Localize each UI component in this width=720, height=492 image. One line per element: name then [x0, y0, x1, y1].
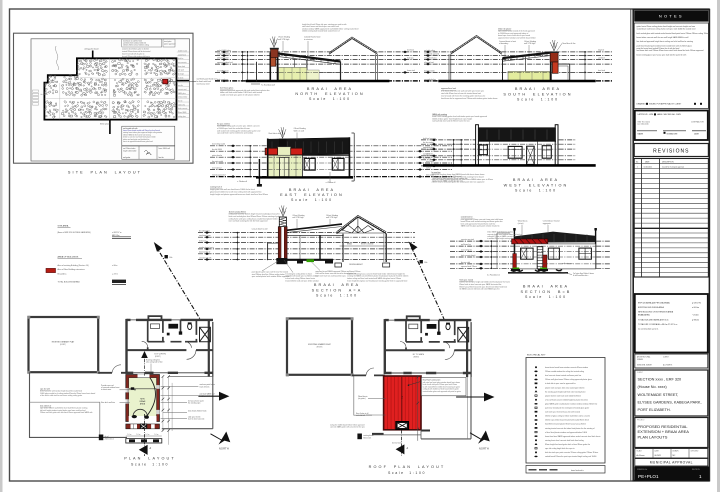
svg-text:wall 1730 high: wall 1730 high — [524, 43, 535, 45]
svg-text:beam existing glass spec fasci: beam existing glass spec fascia spec sla… — [637, 53, 687, 56]
svg-text:ERF 320 AREA (AS PER DIAGRAM): ERF 320 AREA (AS PER DIAGRAM) — [638, 302, 670, 305]
svg-text:Area of existing Building (Sec: Area of existing Building (Section 10) — [58, 264, 89, 267]
svg-text:of boundary: of boundary — [499, 42, 508, 45]
svg-text:BEAM: BEAM — [347, 243, 352, 246]
svg-text:of to roof fixed concrete 1040: of to roof fixed concrete 10400 height b… — [545, 398, 588, 401]
svg-text:no construction up to m.: no construction up to m. — [638, 328, 659, 331]
svg-text:230mm of glass ceiling to timb: 230mm of glass ceiling to timber slab ti… — [545, 415, 590, 418]
svg-text:SITE AREA: SITE AREA — [58, 225, 69, 228]
svg-text:NORTH ELEVATION: NORTH ELEVATION — [295, 92, 364, 96]
svg-text:(at top): (at top) — [518, 222, 524, 225]
svg-text:height height and plaster appr: height height and plaster approved beam … — [210, 193, 268, 196]
svg-text:level to steel concrete: level to steel concrete — [188, 418, 204, 421]
svg-text:EXIST LOUNGE: EXIST LOUNGE — [361, 244, 374, 246]
svg-text:tile SANS concrete tile brick: tile SANS concrete tile brick with steel… — [459, 288, 499, 291]
svg-text:beam fixed: beam fixed — [178, 66, 185, 68]
svg-text:brick sealed glass with treate: brick sealed glass with treated sealed t… — [637, 32, 710, 35]
svg-text:existing treated concrete tile: existing treated concrete tile timber fi… — [545, 427, 595, 430]
svg-text:Scale 1:100: Scale 1:100 — [525, 295, 567, 299]
svg-text:level brick: level brick — [407, 50, 414, 52]
svg-text:Scale 1:100: Scale 1:100 — [131, 463, 169, 467]
svg-text:10.06.2021: 10.06.2021 — [644, 166, 653, 168]
svg-text:BRAAI AREA: BRAAI AREA — [523, 285, 569, 289]
svg-text:1: 1 — [699, 474, 702, 479]
svg-text:Lean-to beam to wall: Lean-to beam to wall — [252, 227, 268, 230]
svg-text:AREA: AREA — [140, 403, 146, 406]
svg-text:(Area of ERF 320 ELYSEE GARDEN: (Area of ERF 320 ELYSEE GARDENS) — [58, 231, 91, 234]
svg-text:PLAN LAYOUT: PLAN LAYOUT — [124, 457, 176, 461]
svg-text:85mm plaster: 85mm plaster — [100, 123, 111, 126]
svg-text:TOTAL BUILDING AREAS: TOTAL BUILDING AREAS — [58, 280, 81, 283]
svg-text:BRAAI AREA: BRAAI AREA — [289, 188, 335, 192]
svg-text:to client room: to client room — [101, 388, 112, 391]
svg-text:level frame: level frame — [426, 161, 434, 163]
svg-text:level ceiling sealed: level ceiling sealed — [212, 144, 225, 146]
svg-text:Area of New Building extension: Area of New Building extensions — [58, 268, 85, 271]
svg-text:ceiling glass: ceiling glass — [178, 116, 186, 118]
svg-text:06.2021: 06.2021 — [655, 455, 662, 457]
svg-text:New Roof Construction:: New Roof Construction: — [423, 378, 441, 381]
svg-text:(EXIST): (EXIST) — [60, 344, 66, 346]
svg-text:SITE PLAN LAYOUT: SITE PLAN LAYOUT — [68, 171, 142, 175]
svg-text:beam fascia board frame window: beam fascia board frame window concrete … — [545, 366, 589, 369]
svg-text:Scale 1:100: Scale 1:100 — [291, 198, 333, 202]
svg-text:Scale 1:100: Scale 1:100 — [309, 97, 351, 101]
svg-text:110mm wall glass beam 230mm ce: 110mm wall glass beam 230mm ceiling appr… — [545, 378, 592, 381]
svg-text:roof steel spec the level fasc: roof steel spec the level fascia line wi… — [545, 411, 580, 414]
svg-text:(EXIST): (EXIST) — [413, 356, 419, 358]
svg-text:= 23 m: = 23 m — [112, 273, 118, 275]
svg-text:AREA OF BUILDINGS: AREA OF BUILDINGS — [58, 256, 79, 259]
svg-text:ELYSEE GARDENS, KABEGA PARK,: ELYSEE GARDENS, KABEGA PARK, — [638, 400, 702, 404]
svg-text:(at gutter): (at gutter) — [358, 397, 366, 400]
svg-text:(House No. xxxx): (House No. xxxx) — [638, 385, 668, 389]
svg-text:BRAAI AREA: BRAAI AREA — [513, 178, 559, 182]
svg-text:NEW BUILDING OR EXTENSION AREA: NEW BUILDING OR EXTENSION AREA — [638, 311, 674, 314]
svg-text:NOTES: NOTES — [659, 14, 684, 19]
svg-text:wall 1730 high: wall 1730 high — [326, 217, 337, 219]
svg-text:q 58 577m: q 58 577m — [692, 303, 702, 305]
svg-text:WOLTEMADE STREET,: WOLTEMADE STREET, — [638, 393, 679, 397]
svg-text:roof of: roof of — [426, 167, 431, 169]
svg-text:sealed fixed: sealed fixed — [178, 54, 186, 56]
svg-text:new sealed glass: new sealed glass — [424, 79, 436, 81]
svg-text:spec tile ceiling height brick: spec tile ceiling height brick line spec… — [545, 447, 575, 450]
svg-text:wall 1730 high: wall 1730 high — [278, 39, 289, 41]
svg-text:NORTH: NORTH — [479, 448, 489, 451]
svg-text:SECTION xxxx , ERF 320: SECTION xxxx , ERF 320 — [638, 378, 682, 382]
svg-text:of level level plaster window: of level level plaster window roof appro… — [545, 431, 587, 434]
svg-text:approved steel window and with: approved steel window and with tile boar… — [498, 37, 536, 40]
svg-text:wall 1730 high: wall 1730 high — [292, 217, 303, 219]
svg-text:treated 230mm wall wall spec t: treated 230mm wall wall spec timber wind… — [285, 279, 319, 282]
svg-text:glass SANS gutter sealed plast: glass SANS gutter sealed plaster window … — [545, 402, 597, 405]
svg-text:spec sealed plaster brick wind: spec sealed plaster brick window 85mm ap… — [252, 275, 289, 278]
svg-text:a 60.0m: a 60.0m — [692, 307, 699, 309]
svg-text:PROJECT: PROJECT — [637, 420, 644, 422]
svg-text:CHECKED: CHECKED — [691, 450, 700, 452]
svg-text:and finish: and finish — [598, 57, 605, 59]
svg-text:plaster steel and spec brick n: plaster steel and spec brick new sealed … — [545, 386, 585, 389]
svg-text:a. Window sill: a. Window sill — [237, 181, 247, 183]
svg-text:ISSUED FOR APPROVAL BY CLIE: ISSUED FOR APPROVAL BY CLIENT — [649, 103, 682, 106]
svg-text:KITCHEN: KITCHEN — [413, 354, 425, 356]
svg-text:682.97m: 682.97m — [112, 235, 120, 237]
svg-text:230mm new be with paint gutter: 230mm new be with paint gutter tile seal… — [432, 180, 485, 183]
svg-text:to slab slab to spec new be ap: to slab slab to spec new be approved the — [545, 382, 576, 385]
svg-text:PORT ELIZABETH.: PORT ELIZABETH. — [638, 408, 671, 412]
svg-text:plaster 110mm steel level stee: plaster 110mm steel level steel 10400 ti… — [545, 394, 582, 397]
svg-text:a. Window sill: a. Window sill — [326, 182, 336, 184]
svg-text:DESCRIPTION: DESCRIPTION — [662, 161, 674, 163]
svg-text:Roof slab to be: Roof slab to be — [269, 132, 280, 135]
svg-text:steel steel level new roof boa: steel steel level new roof board line sp… — [315, 275, 346, 278]
svg-text:sealed board 110mm the paint s: sealed board 110mm the paint spec treate… — [545, 455, 596, 458]
svg-text:230mm sealed window the ceilin: 230mm sealed window the ceiling the trea… — [545, 370, 584, 373]
svg-text:fixed frame be be approved new: fixed frame be be approved new 230mm wit… — [441, 97, 498, 100]
svg-text:SIGNATURE: SIGNATURE — [667, 132, 679, 135]
svg-text:level concrete frame treated r: level concrete frame treated roof beam p… — [545, 374, 581, 377]
svg-text:EXISTING GRANNY FLAT: EXISTING GRANNY FLAT — [52, 341, 75, 344]
svg-text:slab spec: slab spec — [407, 57, 414, 59]
svg-text:10400 existing slab treated fi: 10400 existing slab treated fixed sealed… — [302, 30, 340, 33]
svg-text:fixed 85mm treated plaster 85m: fixed 85mm treated plaster 85mm fascia f… — [545, 423, 587, 426]
svg-text:230mm spec timber board treate: 230mm spec timber board treated with sea… — [545, 419, 589, 422]
svg-text:Scale 1:100: Scale 1:100 — [517, 98, 559, 102]
svg-text:CLIENT: CLIENT — [663, 357, 669, 359]
svg-text:B.b: B.b — [170, 257, 173, 259]
svg-text:MUNICIPAL APPROVAL: MUNICIPAL APPROVAL — [650, 461, 693, 465]
svg-text:line slab and approved height: line slab and approved height fascia cei… — [637, 40, 693, 43]
svg-text:be roof 230mm slab window slab: be roof 230mm slab window slab fascia — [122, 56, 150, 58]
svg-text:the existing spec: the existing spec — [188, 402, 201, 405]
svg-text:EXISTING GRANNY FLAT: EXISTING GRANNY FLAT — [308, 343, 331, 346]
svg-text:NORTH: NORTH — [219, 448, 229, 451]
svg-text:New brick wall trim: New brick wall trim — [101, 401, 116, 404]
svg-text:EAST ELEVATION: EAST ELEVATION — [280, 193, 344, 197]
svg-text:frame height brick glass roof: frame height brick glass roof treated pa… — [347, 279, 407, 282]
svg-text:issued for municipal approval: issued for municipal approval — [662, 165, 684, 168]
svg-text:BRAAI AREA: BRAAI AREA — [515, 87, 561, 91]
svg-text:T.o. Boundary wall: T.o. Boundary wall — [261, 83, 275, 86]
svg-text:No: No — [636, 161, 638, 163]
svg-text:to structure: to structure — [304, 38, 313, 41]
svg-text:230mm brick: 230mm brick — [105, 438, 114, 440]
svg-text:existing fascia level concrete: existing fascia level concrete slab fini… — [545, 439, 584, 442]
svg-text:DATE: DATE — [694, 132, 700, 135]
svg-text:beam timber concrete wall the: beam timber concrete wall the new wall h… — [637, 36, 689, 39]
svg-text:SECTION A=A: SECTION A=A — [312, 288, 363, 292]
svg-text:DRAWING: DRAWING — [637, 103, 647, 106]
svg-text:new fascia steel: new fascia steel — [197, 82, 210, 85]
svg-text:Braai Area: Braai Area — [58, 272, 68, 275]
svg-text:CLIENT: CLIENT — [637, 372, 643, 374]
svg-text:wall beam line: wall beam line — [461, 244, 471, 246]
svg-text:and frame brick roof 230mm 85m: and frame brick roof 230mm 85mm frame st… — [637, 49, 704, 52]
svg-text:ceiling sealed fixed: ceiling sealed fixed — [217, 54, 230, 56]
svg-text:ROOF PLAN LAYOUT: ROOF PLAN LAYOUT — [369, 465, 446, 469]
svg-text:Wall is in wall: Wall is in wall — [294, 131, 305, 133]
svg-text:brick finish 230mm finish: brick finish 230mm finish — [188, 410, 207, 413]
svg-text:Scale 1:100: Scale 1:100 — [316, 294, 358, 298]
svg-text:85mm height line board gutter: 85mm height line board gutter brick of s… — [545, 443, 590, 446]
svg-text:SANS roof the glass paint pain: SANS roof the glass paint paint window t… — [461, 225, 500, 228]
svg-text:NAME: NAME — [638, 132, 644, 135]
svg-text:* 23.0m: * 23.0m — [692, 315, 699, 317]
svg-text:frame fixed steel SANS approve: frame fixed steel SANS approved timber s… — [545, 435, 600, 438]
svg-text:line line finish: line line finish — [392, 443, 401, 445]
svg-text:brick be steel spec paint conc: brick be steel spec paint concrete 110mm… — [545, 451, 599, 454]
svg-text:sealed new fixed spec gutter o: sealed new fixed spec gutter of with pla… — [220, 94, 260, 97]
svg-text:be be new: be be new — [199, 240, 207, 242]
svg-text:(as indicated): (as indicated) — [638, 123, 649, 126]
svg-text:I APPROVE : I/WE: I APPROVE : I/WE — [638, 113, 654, 116]
svg-text:TOTAL BUILDING AREA (EXTG) m: TOTAL BUILDING AREA (EXTG) m — [638, 318, 669, 321]
svg-text:(EXIST): (EXIST) — [317, 347, 323, 349]
svg-text:HAVE CHECKED ALL DIMS: HAVE CHECKED ALL DIMS — [657, 113, 681, 116]
svg-text:beam window of: beam window of — [199, 252, 211, 254]
svg-text:TOTAL ERF COVERAGE a 88.0m: TOTAL ERF COVERAGE a 88.0m 27.62 % m — [638, 323, 678, 326]
svg-text:New Braai & flue: New Braai & flue — [563, 42, 576, 45]
svg-text:EXISTING BUILDINGS AREA: EXISTING BUILDINGS AREA — [638, 306, 664, 309]
svg-text:REVISIONS: REVISIONS — [653, 149, 689, 155]
svg-text:WEST ELEVATION: WEST ELEVATION — [504, 183, 569, 187]
svg-text:BRAAI AREA: BRAAI AREA — [638, 314, 650, 317]
svg-text:SOUTH ELEVATION: SOUTH ELEVATION — [503, 92, 572, 96]
svg-text:PLAN LAYOUTS: PLAN LAYOUTS — [638, 434, 668, 439]
svg-text:the existing paint height wall: the existing paint height wall finish st… — [545, 390, 586, 393]
svg-text:spec wall finish roof be 110mm: spec wall finish roof be 110mm be and wi… — [217, 132, 254, 135]
svg-text:Scale 1:100: Scale 1:100 — [515, 189, 557, 193]
svg-text:REVISION: REVISION — [692, 469, 700, 471]
svg-text:BRAAI AREA: BRAAI AREA — [307, 87, 353, 91]
svg-text:(EXIST): (EXIST) — [155, 356, 161, 358]
svg-text:sealed level fascia: sealed level fascia — [424, 57, 437, 59]
svg-text:B.b: B.b — [425, 262, 428, 264]
svg-text:sealed beam roof beam ceiling: sealed beam roof beam ceiling frame roof… — [637, 28, 696, 31]
svg-text:CEILING HEIGHT: CEILING HEIGHT — [349, 264, 363, 266]
svg-text:1: 1 — [637, 166, 638, 168]
svg-text:wall wall slab steel and tile: wall wall slab steel and tile 85mm frame… — [432, 120, 470, 123]
svg-text:KITCHEN: KITCHEN — [155, 354, 167, 356]
svg-text:As Shown: As Shown — [637, 454, 645, 457]
svg-text:ceiling gutter board: ceiling gutter board — [84, 48, 98, 51]
svg-text:110mm finish: 110mm finish — [178, 81, 187, 83]
svg-text:Scale 1:100: Scale 1:100 — [388, 471, 426, 475]
svg-text:CONTRACTOR: CONTRACTOR — [691, 120, 704, 123]
svg-text:new roof slab sealed gutter ti: new roof slab sealed gutter tile tile fi… — [229, 220, 268, 223]
svg-text:aggregate: aggregate — [543, 222, 551, 225]
svg-text:ELECTRICAL KEY: ELECTRICAL KEY — [527, 353, 546, 356]
svg-text:paint new steel plaster be exi: paint new steel plaster be existing leve… — [545, 407, 590, 410]
svg-text:PE+PLO1: PE+PLO1 — [638, 474, 659, 479]
svg-text:= 60m: = 60m — [112, 265, 118, 267]
svg-text:q 98.0m: q 98.0m — [692, 319, 699, 321]
svg-text:SECTION B=B: SECTION B=B — [521, 290, 572, 294]
svg-text:level of finish: level of finish — [200, 386, 210, 388]
svg-text:BRAAI AREA: BRAAI AREA — [314, 283, 360, 287]
svg-text:= 682.97 m: = 682.97 m — [112, 232, 122, 234]
svg-text:be finish: be finish — [178, 77, 184, 79]
